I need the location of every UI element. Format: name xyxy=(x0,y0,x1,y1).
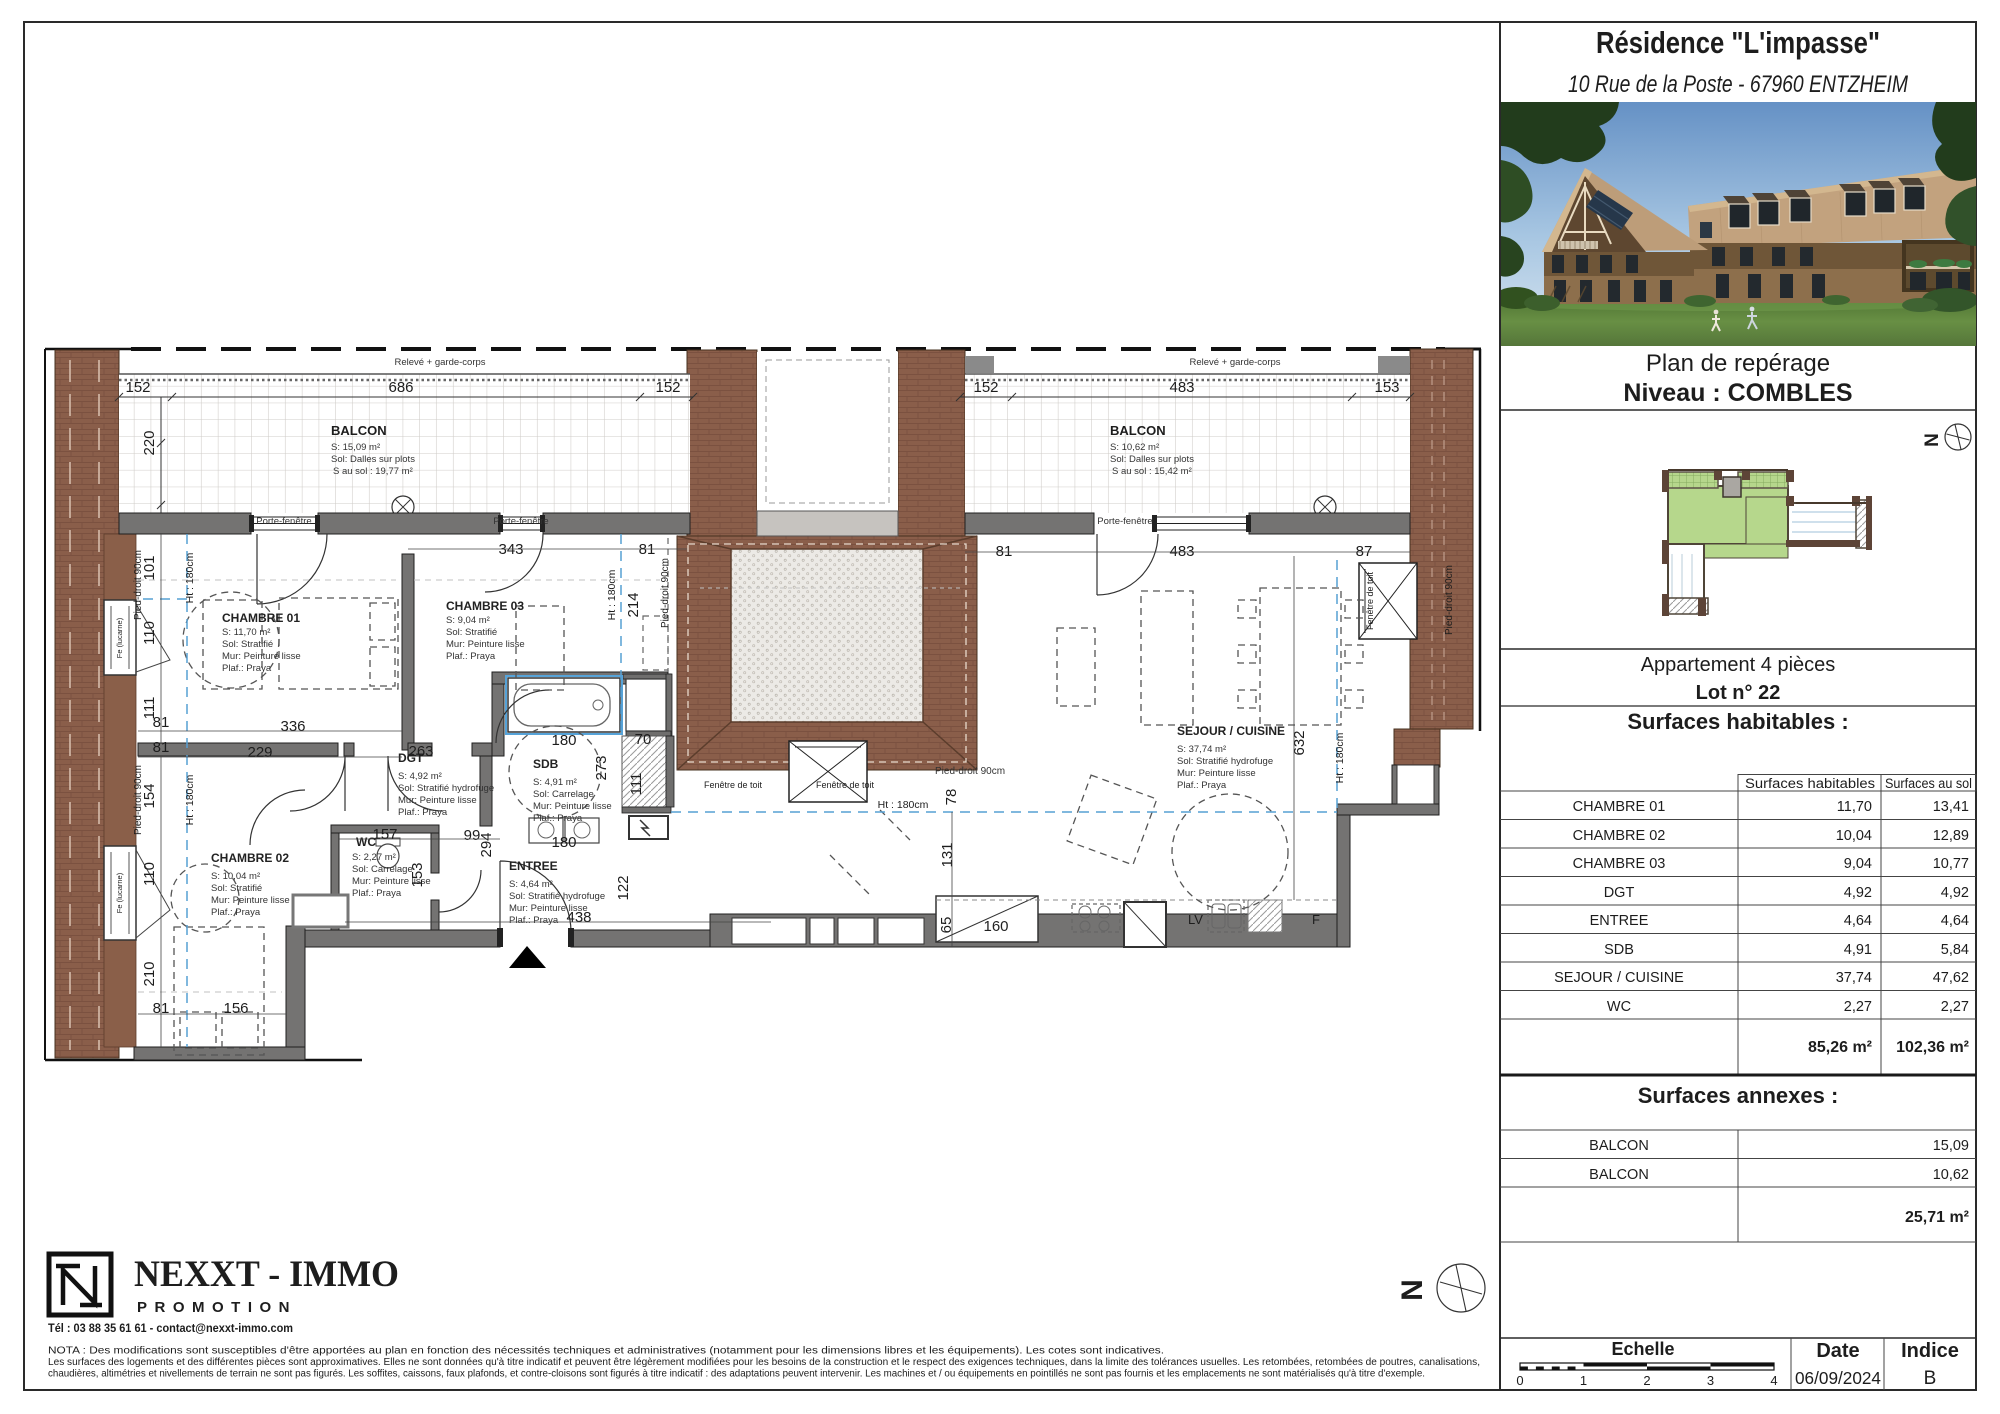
svg-text:343: 343 xyxy=(498,541,523,558)
svg-text:Fe (lucarne): Fe (lucarne) xyxy=(115,617,124,658)
svg-text:10,62: 10,62 xyxy=(1933,1167,1969,1183)
svg-text:Tél : 03 88 35 61 61 - contact: Tél : 03 88 35 61 61 - contact@nexxt-imm… xyxy=(48,1323,293,1335)
svg-text:Relevé + garde-corps: Relevé + garde-corps xyxy=(394,357,485,368)
svg-text:Indice: Indice xyxy=(1901,1340,1959,1362)
svg-text:632: 632 xyxy=(1291,730,1308,755)
svg-text:SDB: SDB xyxy=(1604,942,1634,958)
svg-text:152: 152 xyxy=(125,379,150,396)
svg-text:Pied-droit 90cm: Pied-droit 90cm xyxy=(660,558,671,628)
svg-text:CHAMBRE 01: CHAMBRE 01 xyxy=(222,611,300,625)
svg-text:Ht : 180cm: Ht : 180cm xyxy=(1334,732,1346,783)
svg-text:4,92: 4,92 xyxy=(1844,885,1872,901)
svg-text:686: 686 xyxy=(388,379,413,396)
svg-text:Sol: Carrelage: Sol: Carrelage xyxy=(533,789,594,800)
svg-text:Plaf.: Praya: Plaf.: Praya xyxy=(446,651,496,662)
svg-text:102,36 m²: 102,36 m² xyxy=(1896,1039,1969,1056)
svg-text:78: 78 xyxy=(943,789,960,806)
svg-text:220: 220 xyxy=(141,430,158,455)
svg-text:Relevé + garde-corps: Relevé + garde-corps xyxy=(1189,357,1280,368)
svg-text:336: 336 xyxy=(280,718,305,735)
svg-text:81: 81 xyxy=(639,541,656,558)
svg-text:BALCON: BALCON xyxy=(1589,1138,1649,1154)
svg-text:WC: WC xyxy=(1607,999,1631,1015)
svg-text:13,41: 13,41 xyxy=(1933,799,1969,815)
svg-text:154: 154 xyxy=(141,783,158,808)
svg-text:BALCON: BALCON xyxy=(1110,423,1166,438)
svg-text:S: 4,64 m²: S: 4,64 m² xyxy=(509,879,553,890)
svg-text:Sol: Stratifié: Sol: Stratifié xyxy=(446,627,497,638)
svg-text:S au sol : 15,42 m²: S au sol : 15,42 m² xyxy=(1112,466,1192,477)
svg-text:210: 210 xyxy=(141,961,158,986)
svg-text:Ht : 180cm: Ht : 180cm xyxy=(878,799,929,811)
svg-text:S au sol : 19,77 m²: S au sol : 19,77 m² xyxy=(333,466,413,477)
svg-text:483: 483 xyxy=(1169,379,1194,396)
svg-text:122: 122 xyxy=(615,875,632,900)
svg-text:Surfaces au sol: Surfaces au sol xyxy=(1885,776,1972,791)
svg-text:4,64: 4,64 xyxy=(1844,913,1872,929)
svg-text:10,04: 10,04 xyxy=(1836,828,1872,844)
svg-text:BALCON: BALCON xyxy=(1589,1167,1649,1183)
svg-text:Plaf.: Praya: Plaf.: Praya xyxy=(398,807,448,818)
svg-text:Sol: Stratifié: Sol: Stratifié xyxy=(222,639,273,650)
svg-text:9,04: 9,04 xyxy=(1844,856,1872,872)
svg-text:5,84: 5,84 xyxy=(1941,942,1969,958)
svg-text:Fenêtre de toit: Fenêtre de toit xyxy=(704,780,763,790)
svg-text:1: 1 xyxy=(1580,1373,1587,1388)
svg-text:Surfaces annexes :: Surfaces annexes : xyxy=(1638,1083,1839,1108)
svg-text:06/09/2024: 06/09/2024 xyxy=(1795,1368,1881,1388)
svg-text:25,71 m²: 25,71 m² xyxy=(1905,1209,1969,1226)
svg-text:229: 229 xyxy=(247,744,272,761)
svg-text:Date: Date xyxy=(1816,1340,1859,1362)
svg-text:Fenêtre de toit: Fenêtre de toit xyxy=(1365,571,1375,630)
svg-text:81: 81 xyxy=(996,543,1013,560)
svg-text:Porte-fenêtre: Porte-fenêtre xyxy=(256,516,311,527)
svg-text:153: 153 xyxy=(409,862,426,887)
svg-text:3: 3 xyxy=(1707,1373,1714,1388)
svg-text:CHAMBRE 01: CHAMBRE 01 xyxy=(1573,799,1666,815)
svg-text:S: 15,09 m²: S: 15,09 m² xyxy=(331,442,380,453)
svg-text:SEJOUR / CUISINE: SEJOUR / CUISINE xyxy=(1554,970,1684,986)
svg-text:S: 11,70 m²: S: 11,70 m² xyxy=(222,627,270,638)
svg-text:Sol: Stratifié hydrofuge: Sol: Stratifié hydrofuge xyxy=(1177,756,1273,767)
svg-text:PROMOTION: PROMOTION xyxy=(137,1299,297,1316)
svg-text:15,09: 15,09 xyxy=(1933,1138,1969,1154)
svg-text:Sol: Carrelage: Sol: Carrelage xyxy=(352,864,413,875)
svg-text:S: 10,62 m²: S: 10,62 m² xyxy=(1110,442,1159,453)
svg-text:Ht : 180cm: Ht : 180cm xyxy=(184,552,196,603)
svg-text:11,70: 11,70 xyxy=(1837,799,1872,815)
svg-text:483: 483 xyxy=(1169,543,1194,560)
svg-text:Pied-droit 90cm: Pied-droit 90cm xyxy=(935,766,1005,777)
svg-text:156: 156 xyxy=(223,1000,248,1017)
svg-text:S: 37,74 m²: S: 37,74 m² xyxy=(1177,744,1226,755)
svg-text:Sol: Dalles sur plots: Sol: Dalles sur plots xyxy=(1110,454,1194,465)
svg-text:Mur: Peinture lisse: Mur: Peinture lisse xyxy=(211,895,290,906)
svg-text:Sol: Stratifié: Sol: Stratifié xyxy=(211,883,262,894)
svg-text:153: 153 xyxy=(1374,379,1399,396)
svg-text:Plaf.: Praya: Plaf.: Praya xyxy=(509,915,559,926)
svg-text:CHAMBRE 02: CHAMBRE 02 xyxy=(211,851,289,865)
svg-text:Plaf.: Praya: Plaf.: Praya xyxy=(211,907,261,918)
svg-text:152: 152 xyxy=(973,379,998,396)
svg-text:Sol: Stratifié hydrofuge: Sol: Stratifié hydrofuge xyxy=(398,783,494,794)
svg-text:Fenêtre de toit: Fenêtre de toit xyxy=(816,780,875,790)
svg-text:BALCON: BALCON xyxy=(331,423,387,438)
svg-text:LV: LV xyxy=(1188,912,1203,927)
svg-text:180: 180 xyxy=(551,732,576,749)
svg-text:Plaf.: Praya: Plaf.: Praya xyxy=(352,888,402,899)
svg-text:152: 152 xyxy=(655,379,680,396)
svg-text:N: N xyxy=(1922,433,1943,447)
svg-text:Sol: Dalles sur plots: Sol: Dalles sur plots xyxy=(331,454,415,465)
svg-text:Résidence "L'impasse": Résidence "L'impasse" xyxy=(1596,25,1880,60)
svg-text:157: 157 xyxy=(372,826,397,843)
svg-text:214: 214 xyxy=(625,592,642,617)
svg-text:Plaf.: Praya: Plaf.: Praya xyxy=(533,813,583,824)
svg-text:SDB: SDB xyxy=(533,757,559,771)
svg-text:Mur: Peinture lisse: Mur: Peinture lisse xyxy=(222,651,301,662)
svg-text:70: 70 xyxy=(635,731,652,748)
svg-text:ENTREE: ENTREE xyxy=(1590,913,1649,929)
svg-text:Sol: Stratifié hydrofuge: Sol: Stratifié hydrofuge xyxy=(509,891,605,902)
svg-text:4,64: 4,64 xyxy=(1941,913,1969,929)
svg-text:Porte-fenêtre: Porte-fenêtre xyxy=(493,516,548,527)
svg-text:Les surfaces des logements et: Les surfaces des logements et des différ… xyxy=(48,1357,1480,1368)
svg-text:ENTREE: ENTREE xyxy=(509,859,558,873)
svg-text:0: 0 xyxy=(1516,1373,1523,1388)
svg-text:CHAMBRE 03: CHAMBRE 03 xyxy=(1573,856,1666,872)
svg-text:85,26 m²: 85,26 m² xyxy=(1808,1039,1872,1056)
svg-text:2,27: 2,27 xyxy=(1844,999,1872,1015)
svg-text:273: 273 xyxy=(593,755,610,780)
svg-text:Lot n° 22: Lot n° 22 xyxy=(1696,682,1781,704)
svg-text:Appartement 4 pièces: Appartement 4 pièces xyxy=(1641,654,1836,676)
svg-text:263: 263 xyxy=(408,743,433,760)
svg-text:Mur: Peinture lisse: Mur: Peinture lisse xyxy=(398,795,477,806)
svg-text:12,89: 12,89 xyxy=(1933,828,1969,844)
svg-text:S: 2,27 m²: S: 2,27 m² xyxy=(352,852,396,863)
svg-text:131: 131 xyxy=(939,842,956,867)
svg-text:65: 65 xyxy=(938,917,955,934)
svg-text:S: 10,04 m²: S: 10,04 m² xyxy=(211,871,260,882)
svg-text:Plaf.: Praya: Plaf.: Praya xyxy=(222,663,272,674)
svg-text:111: 111 xyxy=(628,773,645,796)
svg-text:2: 2 xyxy=(1643,1373,1650,1388)
svg-text:CHAMBRE 03: CHAMBRE 03 xyxy=(446,599,524,613)
svg-text:Pied-droit 90cm: Pied-droit 90cm xyxy=(1444,565,1455,635)
svg-text:438: 438 xyxy=(566,909,591,926)
svg-text:Surfaces habitables: Surfaces habitables xyxy=(1745,776,1875,791)
svg-text:101: 101 xyxy=(141,555,158,580)
svg-text:Plaf.: Praya: Plaf.: Praya xyxy=(1177,780,1227,791)
svg-text:37,74: 37,74 xyxy=(1836,970,1872,986)
svg-text:Mur: Peinture lisse: Mur: Peinture lisse xyxy=(446,639,525,650)
svg-text:4,92: 4,92 xyxy=(1941,885,1969,901)
svg-text:chaudières, altimétries et niv: chaudières, altimétries et nivellements … xyxy=(48,1369,1425,1380)
svg-text:Ht : 180cm: Ht : 180cm xyxy=(184,774,196,825)
svg-text:Porte-fenêtre: Porte-fenêtre xyxy=(1097,516,1152,527)
svg-text:Plan de repérage: Plan de repérage xyxy=(1646,350,1830,377)
svg-text:SEJOUR / CUISINE: SEJOUR / CUISINE xyxy=(1177,724,1285,738)
svg-text:NOTA : Des modifications sont: NOTA : Des modifications sont susceptibl… xyxy=(48,1346,1164,1357)
svg-text:Mur: Peinture lisse: Mur: Peinture lisse xyxy=(1177,768,1256,779)
svg-text:Surfaces habitables :: Surfaces habitables : xyxy=(1627,709,1848,734)
svg-text:S: 4,91 m²: S: 4,91 m² xyxy=(533,777,577,788)
svg-text:87: 87 xyxy=(1356,543,1373,560)
svg-text:Mur: Peinture lisse: Mur: Peinture lisse xyxy=(533,801,612,812)
svg-text:294: 294 xyxy=(478,832,495,857)
svg-text:N: N xyxy=(1396,1279,1429,1301)
svg-text:110: 110 xyxy=(141,621,158,645)
svg-text:S: 4,92 m²: S: 4,92 m² xyxy=(398,771,442,782)
svg-text:180: 180 xyxy=(551,834,576,851)
svg-text:S: 9,04 m²: S: 9,04 m² xyxy=(446,615,490,626)
svg-text:NEXXT - IMMO: NEXXT - IMMO xyxy=(134,1254,399,1295)
svg-text:2,27: 2,27 xyxy=(1941,999,1969,1015)
svg-text:Fe (lucarne): Fe (lucarne) xyxy=(115,872,124,913)
svg-text:110: 110 xyxy=(141,862,158,886)
svg-text:F: F xyxy=(1312,912,1320,927)
svg-text:4,91: 4,91 xyxy=(1844,942,1872,958)
svg-text:Echelle: Echelle xyxy=(1611,1339,1674,1359)
svg-text:47,62: 47,62 xyxy=(1933,970,1969,986)
svg-text:160: 160 xyxy=(983,918,1008,935)
svg-text:Ht : 180cm: Ht : 180cm xyxy=(606,569,618,620)
svg-text:10,77: 10,77 xyxy=(1933,856,1969,872)
svg-text:10 Rue de la Poste - 67960 ENT: 10 Rue de la Poste - 67960 ENTZHEIM xyxy=(1568,71,1908,98)
svg-text:CHAMBRE 02: CHAMBRE 02 xyxy=(1573,828,1666,844)
svg-text:DGT: DGT xyxy=(1604,885,1635,901)
svg-text:B: B xyxy=(1924,1368,1937,1389)
svg-text:4: 4 xyxy=(1770,1373,1777,1388)
svg-text:Niveau : COMBLES: Niveau : COMBLES xyxy=(1623,379,1852,407)
